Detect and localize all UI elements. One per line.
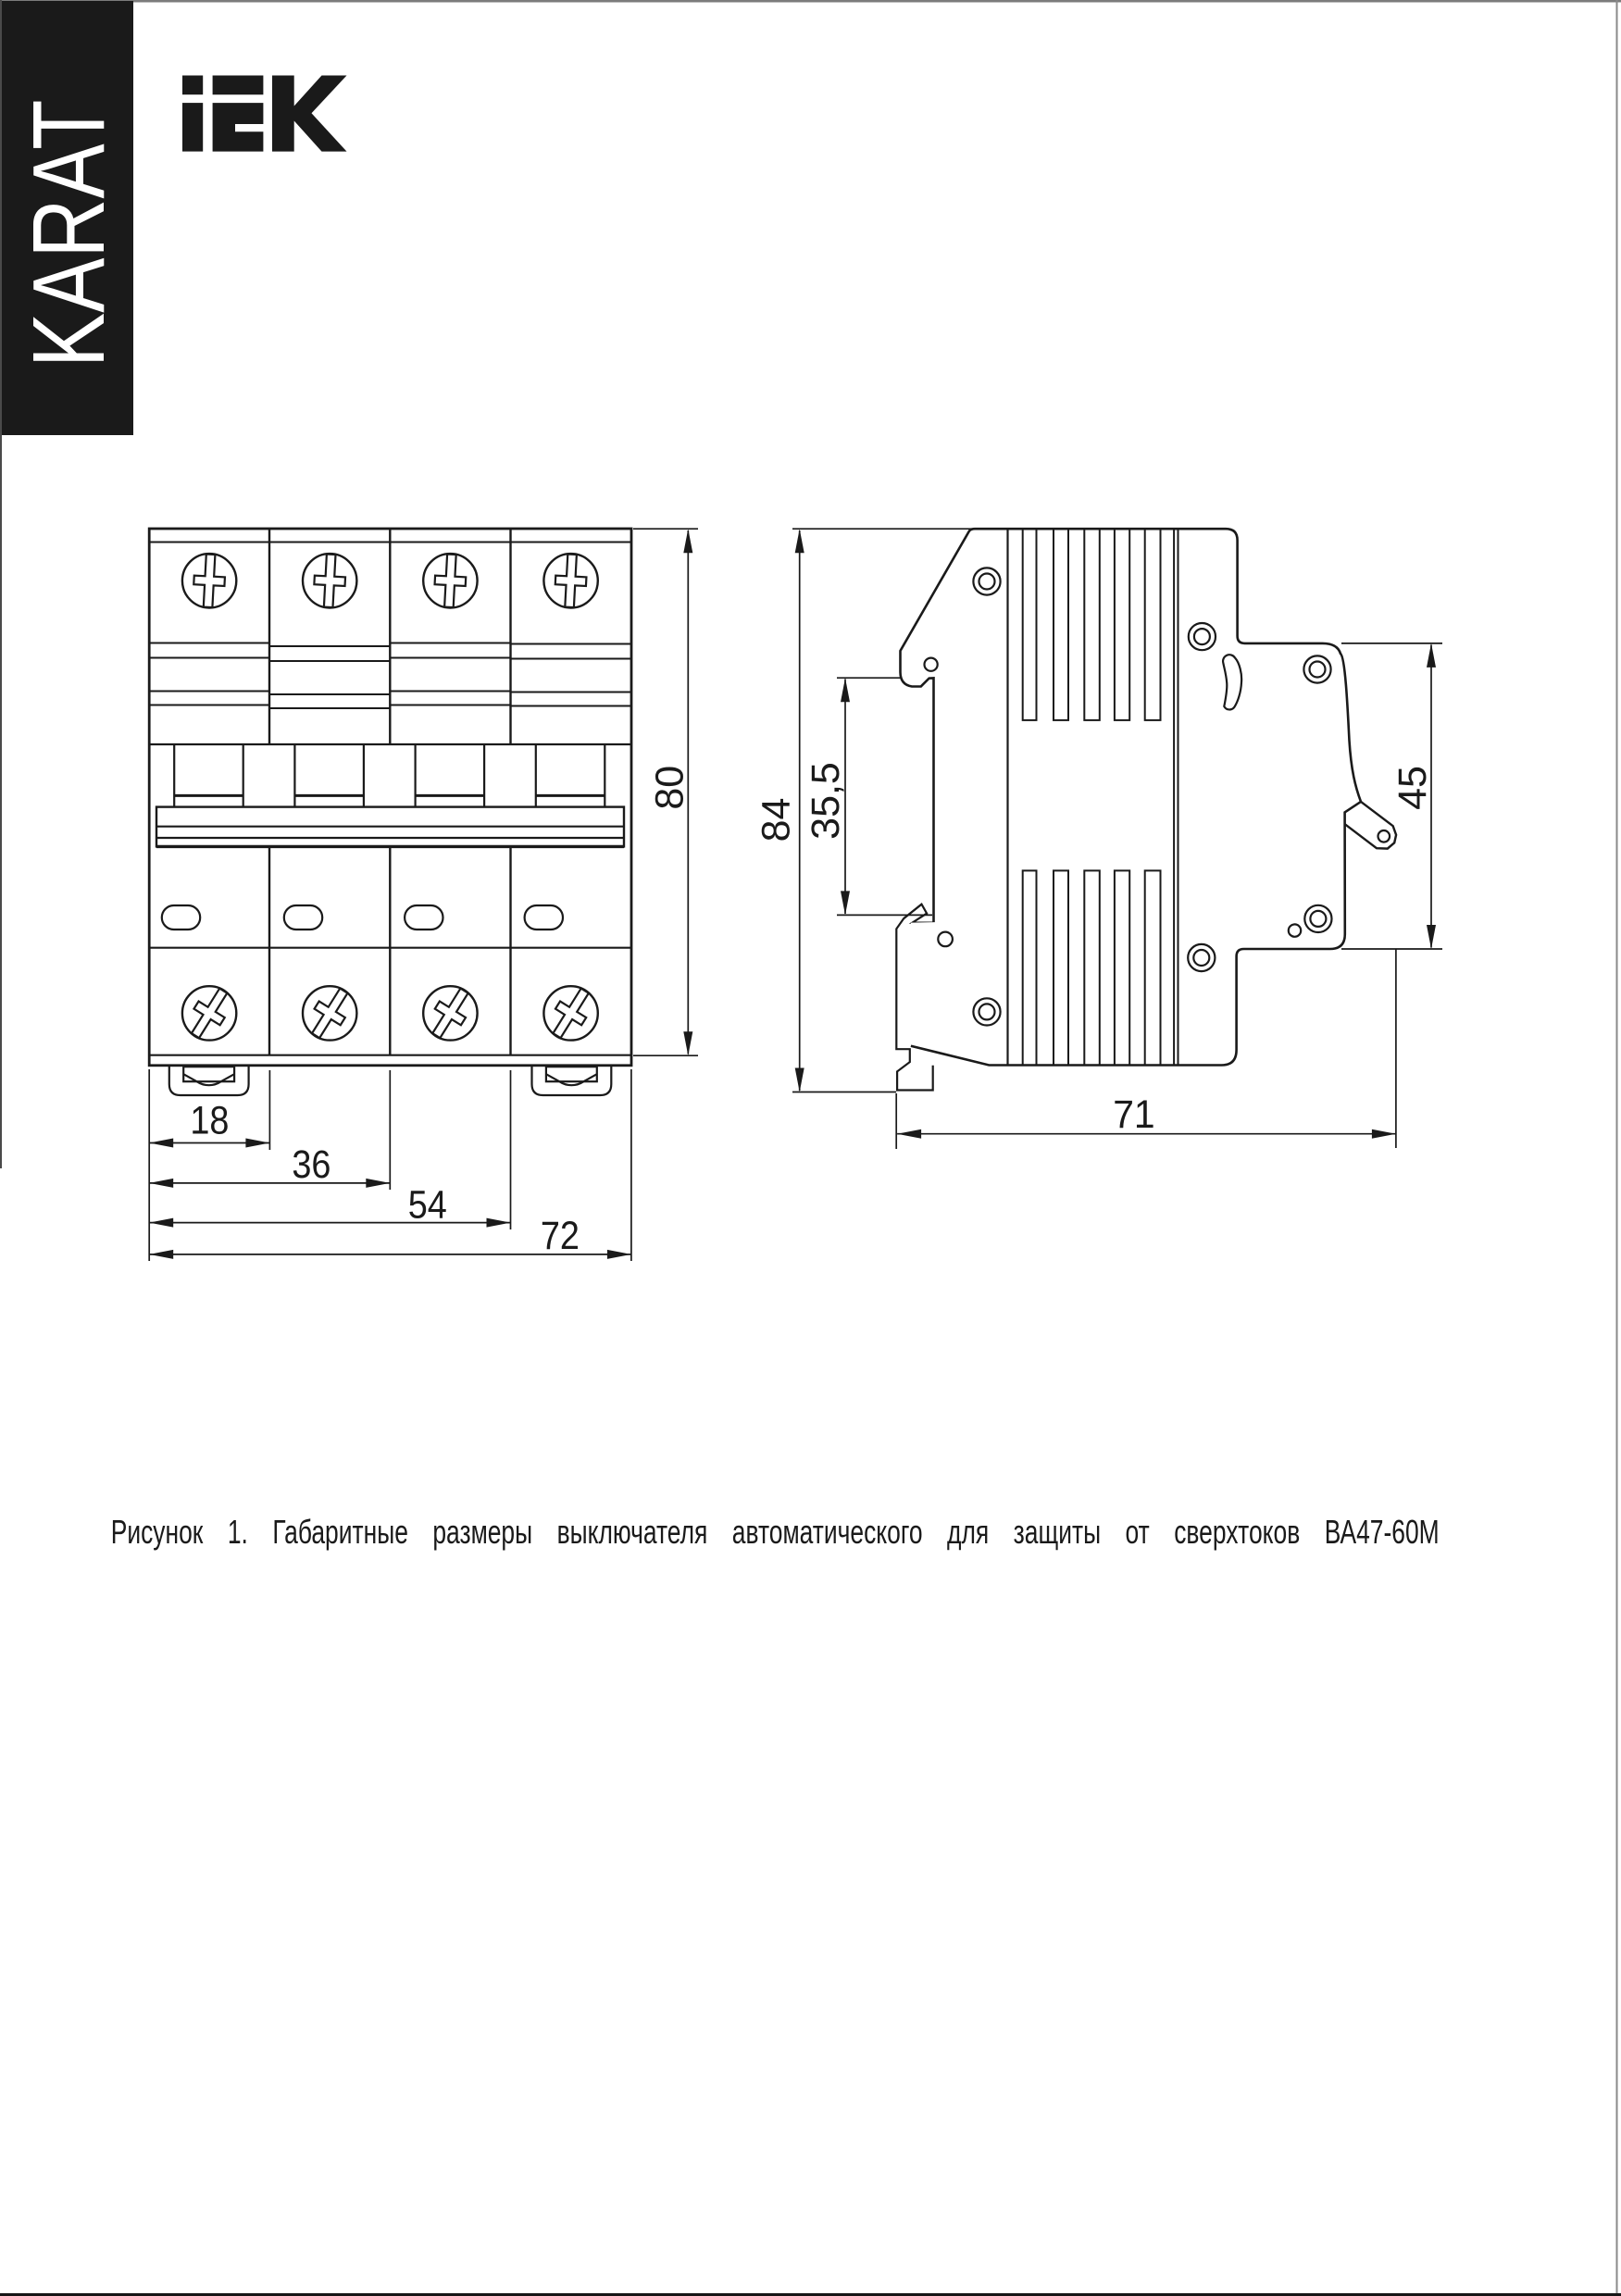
svg-text:71: 71 — [1113, 1092, 1154, 1136]
svg-text:54: 54 — [408, 1181, 447, 1227]
svg-text:45: 45 — [1390, 766, 1435, 810]
svg-text:KARAT: KARAT — [13, 100, 126, 368]
svg-text:36: 36 — [292, 1142, 330, 1187]
svg-text:18: 18 — [190, 1097, 229, 1142]
svg-text:72: 72 — [541, 1213, 580, 1258]
svg-text:80: 80 — [648, 766, 692, 810]
svg-text:84: 84 — [754, 798, 799, 842]
svg-text:35,5: 35,5 — [804, 762, 848, 840]
svg-text:Рисунок 1. Габаритные размеры: Рисунок 1. Габаритные размеры выключател… — [111, 1513, 1440, 1551]
